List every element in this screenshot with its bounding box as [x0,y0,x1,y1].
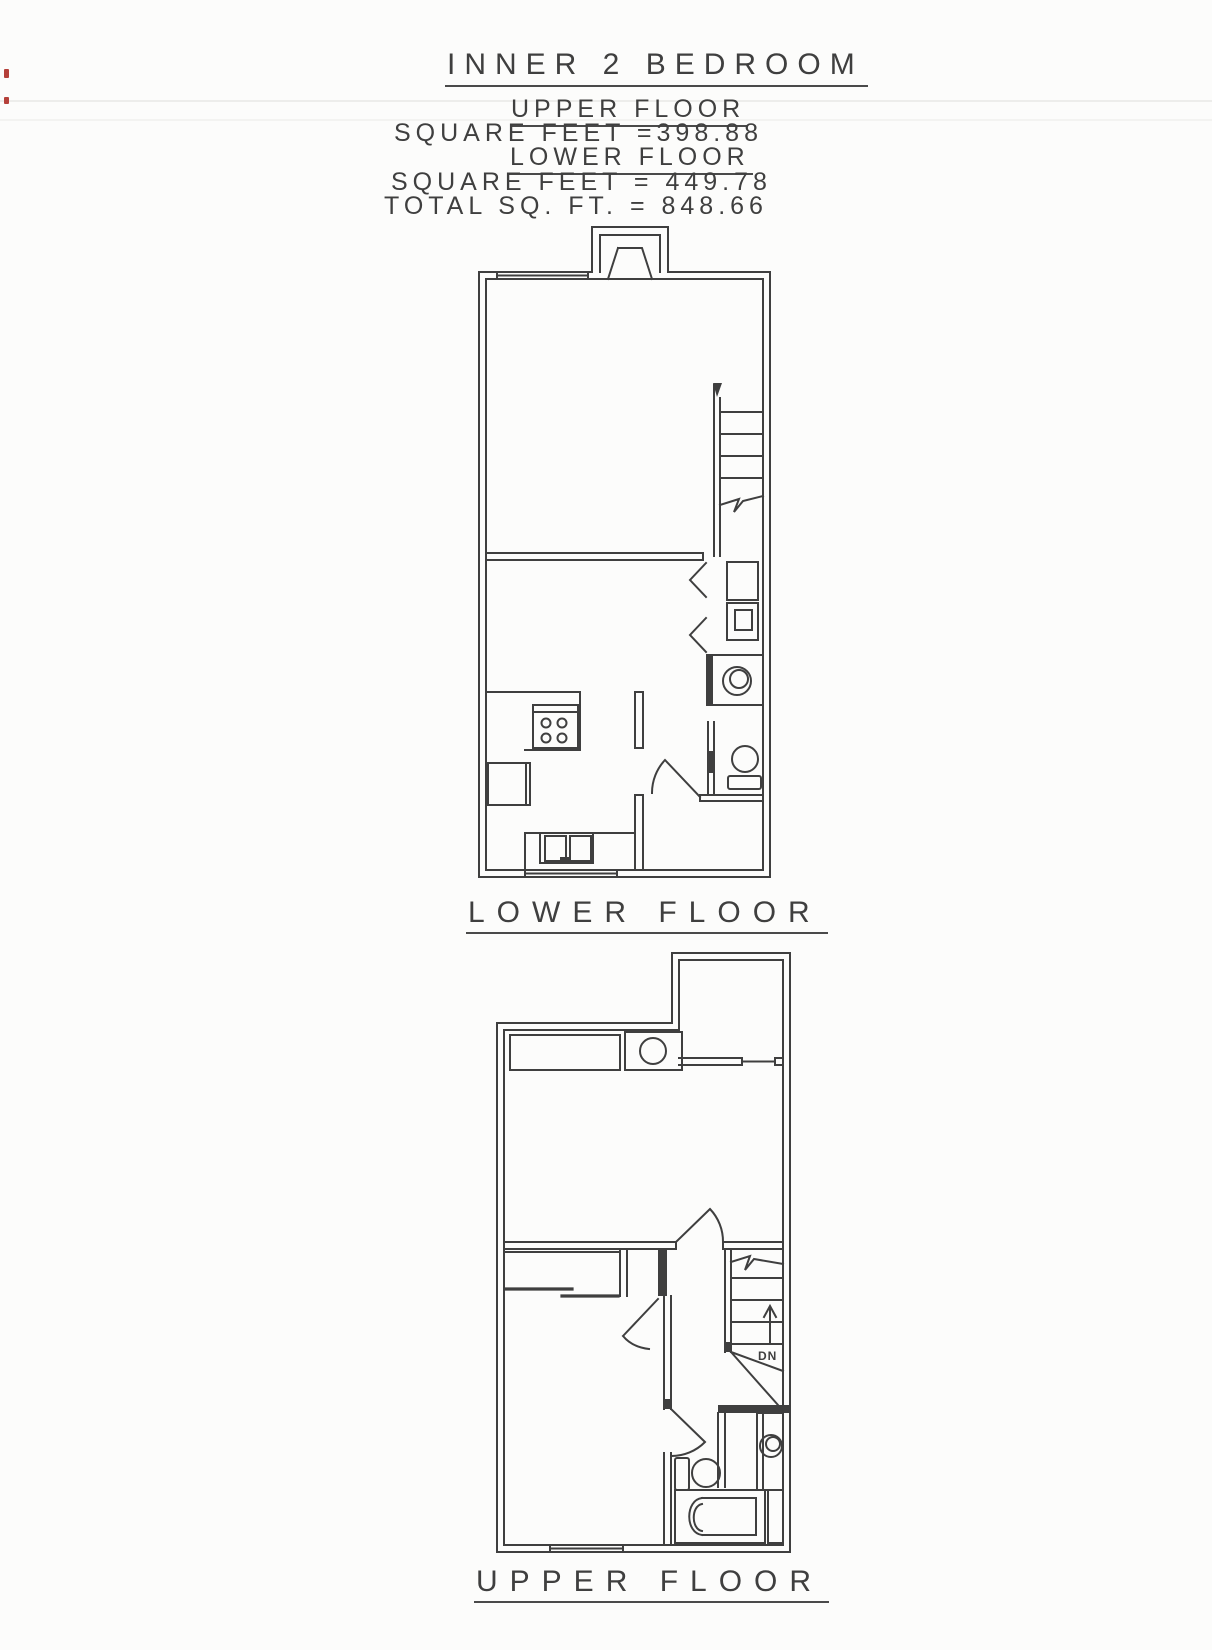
laundry-fixture [625,1032,682,1070]
wall-stub [635,692,643,748]
interior-wall [664,1296,671,1545]
half-bath [652,722,763,801]
washer [727,562,758,600]
stair-direction-label: DN [758,1349,777,1363]
dryer [727,603,758,640]
bathroom [675,1413,783,1543]
stair-break-line [720,496,763,512]
fireplace [600,235,660,279]
floor-plan-sheet: INNER 2 BEDROOM UPPER FLOOR SQUARE FEET … [0,0,1212,1650]
refrigerator [488,763,530,805]
linen-cabinet [768,1490,783,1543]
upper-floor-plan [497,953,790,1552]
vanity-sink [757,1413,783,1490]
interior-wall [635,795,643,870]
interior-wall [486,553,703,560]
door-swing [676,1209,723,1242]
closet [510,1035,620,1070]
lower-floor-plan [479,227,770,877]
upper-floor-caption: UPPER FLOOR [474,1565,829,1603]
lower-floor-caption: LOWER FLOOR [466,896,828,934]
bifold-door [690,618,706,652]
staircase-down [718,1250,790,1413]
window [497,272,588,279]
stair-direction-arrow [764,1306,776,1342]
door-swing [652,760,700,797]
kitchen [486,692,643,870]
bathtub [675,1490,765,1543]
floor-plan-drawing [0,0,1212,1650]
range-stove [533,705,578,748]
bifold-door [690,563,706,597]
interior-wall [504,1242,783,1249]
toilet [675,1458,720,1490]
counter [525,833,635,870]
lower-exterior-wall-inner [486,279,763,870]
deck-wall [679,1058,783,1065]
door-swing [671,1409,705,1456]
window [550,1545,623,1552]
staircase-up [713,383,763,556]
double-sink [540,833,593,863]
door-swing [623,1299,658,1349]
toilet [728,746,761,789]
window [525,870,617,877]
sliding-door-closet [504,1250,667,1296]
water-heater [707,655,763,705]
laundry-closet [690,562,758,652]
stair-break-line [731,1256,783,1270]
